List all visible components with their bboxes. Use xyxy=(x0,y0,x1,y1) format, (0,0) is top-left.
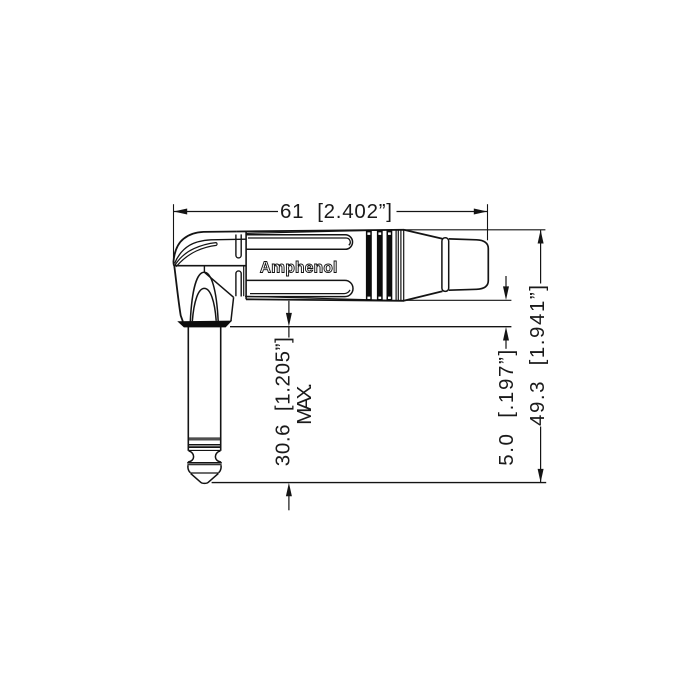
svg-text:MAX.: MAX. xyxy=(293,383,316,425)
svg-text:5.0 [.197”]: 5.0 [.197”] xyxy=(495,350,518,466)
svg-text:61 [2.402”]: 61 [2.402”] xyxy=(280,200,392,223)
svg-text:49.3 [1.941”]: 49.3 [1.941”] xyxy=(526,285,549,426)
svg-text:30.6 [1.205”]: 30.6 [1.205”] xyxy=(271,337,294,466)
svg-text:Amphenol: Amphenol xyxy=(260,260,338,277)
